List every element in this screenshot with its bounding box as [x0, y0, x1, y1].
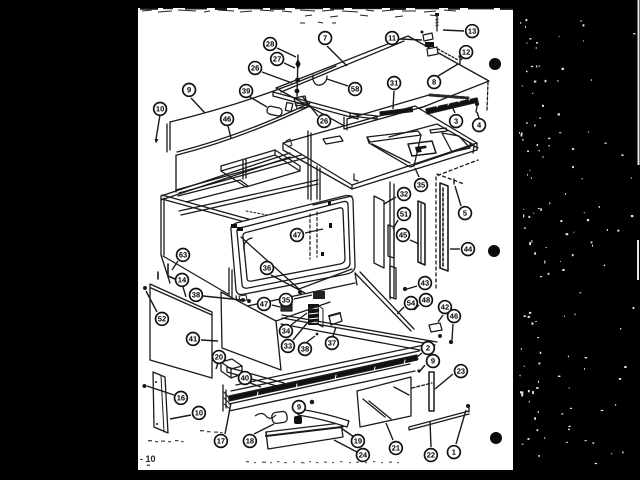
svg-text:27: 27 — [273, 54, 281, 63]
svg-text:8: 8 — [432, 78, 436, 87]
svg-text:11: 11 — [388, 34, 396, 43]
svg-text:26: 26 — [320, 116, 328, 125]
svg-text:48: 48 — [422, 296, 430, 305]
svg-text:7: 7 — [323, 34, 327, 43]
svg-text:44: 44 — [464, 245, 473, 254]
svg-text:41: 41 — [189, 334, 197, 343]
svg-text:52: 52 — [158, 314, 166, 323]
svg-text:14: 14 — [178, 275, 187, 284]
svg-text:47: 47 — [293, 230, 301, 239]
svg-text:1: 1 — [452, 448, 456, 457]
svg-text:38: 38 — [192, 290, 200, 299]
svg-text:12: 12 — [462, 48, 470, 57]
svg-text:17: 17 — [217, 436, 225, 445]
svg-text:51: 51 — [400, 210, 408, 219]
svg-text:23: 23 — [457, 367, 465, 376]
svg-text:38: 38 — [301, 344, 309, 353]
svg-text:28: 28 — [266, 39, 274, 48]
svg-text:45: 45 — [399, 231, 407, 240]
svg-text:18: 18 — [246, 436, 254, 445]
svg-text:9: 9 — [187, 85, 191, 94]
svg-text:63: 63 — [179, 250, 187, 259]
svg-text:54: 54 — [407, 299, 416, 308]
svg-text:40: 40 — [241, 373, 249, 382]
svg-text:46: 46 — [223, 114, 231, 123]
svg-text:31: 31 — [390, 79, 398, 88]
svg-text:36: 36 — [263, 263, 271, 272]
svg-text:32: 32 — [400, 190, 408, 199]
svg-text:10: 10 — [195, 408, 203, 417]
svg-text:10: 10 — [156, 104, 164, 113]
svg-text:24: 24 — [359, 451, 368, 460]
svg-text:58: 58 — [351, 85, 359, 94]
svg-text:34: 34 — [282, 326, 291, 335]
svg-text:21: 21 — [392, 444, 400, 453]
svg-text:22: 22 — [427, 451, 435, 460]
svg-text:3: 3 — [454, 117, 458, 126]
svg-text:39: 39 — [242, 86, 250, 95]
svg-text:- 10: - 10 — [140, 454, 156, 464]
svg-text:37: 37 — [328, 339, 336, 348]
svg-text:19: 19 — [354, 437, 362, 446]
svg-text:47: 47 — [260, 299, 268, 308]
svg-text:16: 16 — [177, 393, 185, 402]
svg-text:43: 43 — [421, 279, 429, 288]
svg-text:42: 42 — [441, 303, 449, 312]
svg-text:2: 2 — [426, 344, 430, 353]
svg-text:5: 5 — [463, 209, 467, 218]
svg-text:33: 33 — [284, 341, 292, 350]
svg-text:26: 26 — [251, 63, 259, 72]
svg-text:20: 20 — [215, 352, 223, 361]
svg-text:9: 9 — [431, 357, 435, 366]
svg-text:35: 35 — [282, 295, 290, 304]
svg-text:35: 35 — [417, 181, 425, 190]
svg-text:46: 46 — [450, 312, 458, 321]
svg-text:13: 13 — [468, 27, 476, 36]
svg-text:9: 9 — [297, 402, 301, 411]
